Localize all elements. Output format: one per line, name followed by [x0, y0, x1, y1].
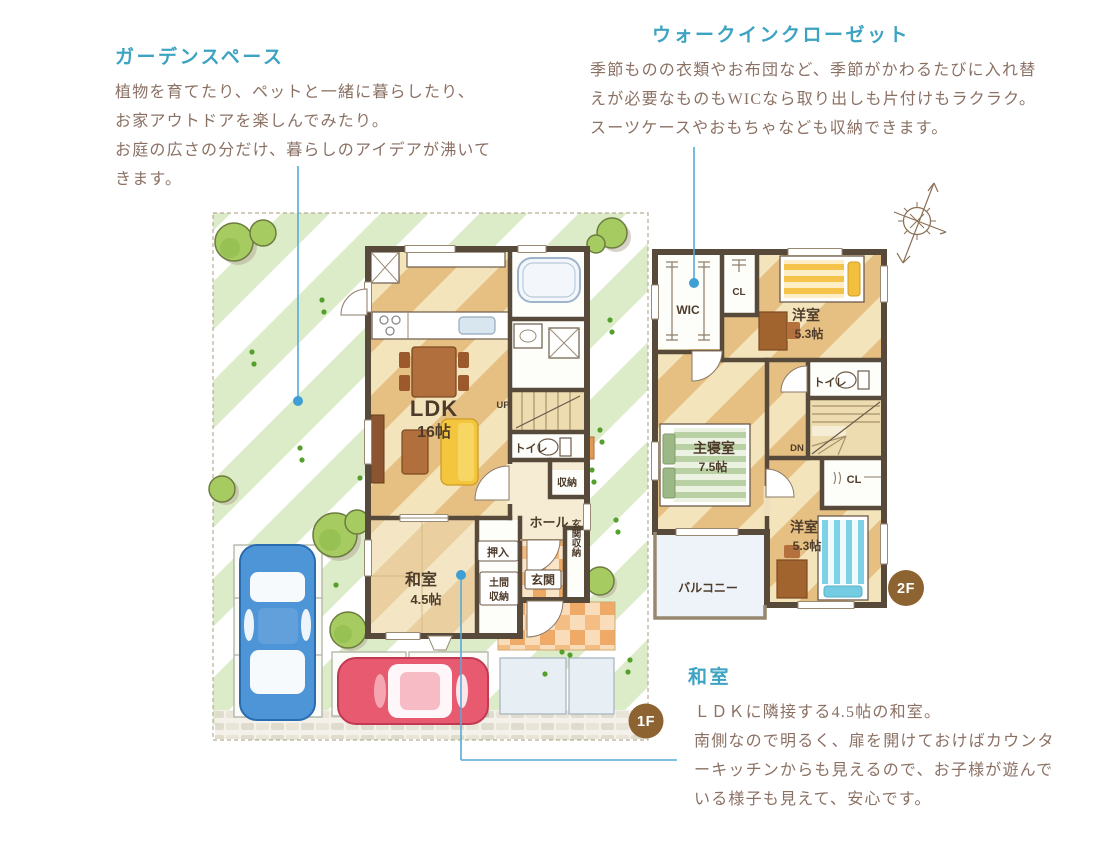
label-up: UP — [496, 400, 510, 411]
washitsu-annotation-title: 和室 — [688, 662, 1055, 689]
wic-annotation-title: ウォークインクローゼット — [652, 20, 1036, 47]
car-blue — [240, 545, 315, 720]
label-yoshitsu2-size: 5.3帖 — [793, 538, 822, 553]
washitsu-annotation-line: いる様子も見えて、安心です。 — [694, 785, 1055, 814]
label-washitsu-size: 4.5帖 — [410, 592, 441, 607]
car-red — [338, 658, 488, 724]
floor1-badge: 1F — [629, 704, 664, 739]
garden-annotation-line: お家アウトドアを楽しんでみたり。 — [115, 107, 491, 136]
garden-annotation-title: ガーデンスペース — [115, 42, 491, 69]
label-yoshitsu2: 洋室 — [790, 519, 818, 535]
label-ldk: LDK — [410, 396, 458, 421]
label-genkan-shuno: 玄関収納 — [570, 518, 582, 558]
floor2-badge-label: 2F — [897, 581, 915, 597]
label-doma-1: 土間 — [489, 576, 509, 589]
garden-callout-dot — [293, 396, 303, 406]
label-dn: DN — [790, 443, 804, 454]
floor2-badge: 2F — [888, 570, 924, 606]
vanity-icon — [514, 324, 542, 348]
room-balcony — [657, 534, 765, 618]
desk-yoshitsu1 — [759, 312, 787, 350]
label-balcony: バルコニー — [678, 581, 738, 595]
sink-icon — [459, 317, 495, 334]
label-shuno: 収納 — [557, 476, 577, 489]
bed-yoshitsu2 — [818, 516, 868, 600]
wic-annotation: ウォークインクローゼット 季節ものの衣類やお布団など、季節がかわるたびに入れ替 … — [590, 20, 1036, 143]
wic-annotation-line: 季節ものの衣類やお布団など、季節がかわるたびに入れ替 — [590, 56, 1036, 85]
washitsu-annotation-line: ＬＤＫに隣接する4.5帖の和室。 — [694, 698, 1055, 727]
label-cl-right: CL — [847, 474, 862, 486]
wic-annotation-line: スーツケースやおもちゃなども収納できます。 — [590, 114, 1036, 143]
garden-annotation-line: 植物を育てたり、ペットと一緒に暮らしたり、 — [115, 78, 491, 107]
floor2-plan: WIC CL 洋室 5.3帖 主寝室 7.5帖 トイレ DN CL 洋室 5.3… — [652, 249, 888, 619]
label-yoshitsu1-size: 5.3帖 — [795, 326, 824, 341]
label-genkan: 玄関 — [531, 572, 555, 587]
floor1-plan: LDK 16帖 和室 4.5帖 押入 土間 収納 玄関 玄関収納 ホール 収納 … — [209, 213, 648, 740]
label-hall: ホール — [529, 515, 568, 530]
label-washitsu: 和室 — [405, 570, 437, 589]
garden-annotation: ガーデンスペース 植物を育てたり、ペットと一緒に暮らしたり、 お家アウトドアを楽… — [115, 42, 491, 194]
label-toilet-1f: トイレ — [515, 442, 548, 455]
wic-callout-dot — [689, 278, 699, 288]
wic-annotation-line: えが必要なものもWICなら取り出しも片付けもラクラク。 — [590, 85, 1036, 114]
label-doma-2: 収納 — [489, 590, 509, 603]
bathtub-icon — [518, 258, 580, 302]
washitsu-callout-dot — [456, 570, 466, 580]
garden-annotation-line: お庭の広さの分だけ、暮らしのアイデアが沸いて — [115, 136, 491, 165]
floor1-badge-label: 1F — [637, 714, 655, 730]
garden-annotation-line: きます。 — [115, 165, 491, 194]
label-wic: WIC — [676, 303, 700, 317]
washer-icon — [549, 328, 579, 358]
washitsu-sliding-door — [400, 515, 448, 522]
washitsu-annotation-line: ーキッチンからも見えるので、お子様が遊んで — [694, 756, 1055, 785]
label-yoshitsu1: 洋室 — [792, 307, 820, 323]
page: LDK 16帖 和室 4.5帖 押入 土間 収納 玄関 玄関収納 ホール 収納 … — [0, 0, 1100, 846]
label-cl-top: CL — [732, 287, 745, 298]
label-oshiire: 押入 — [487, 545, 509, 559]
label-ldk-size: 16帖 — [417, 422, 451, 441]
label-toilet-2f: トイレ — [814, 376, 847, 389]
washitsu-annotation: 和室 ＬＤＫに隣接する4.5帖の和室。 南側なので明るく、扉を開けておけばカウン… — [688, 662, 1055, 814]
bed-yoshitsu1 — [780, 256, 864, 302]
compass-icon — [894, 183, 946, 263]
desk-yoshitsu2 — [777, 560, 807, 598]
label-shinshitsu-size: 7.5帖 — [699, 459, 728, 474]
label-shinshitsu: 主寝室 — [693, 440, 735, 456]
tv-board — [371, 415, 384, 483]
washitsu-annotation-line: 南側なので明るく、扉を開けておけばカウンタ — [694, 727, 1055, 756]
